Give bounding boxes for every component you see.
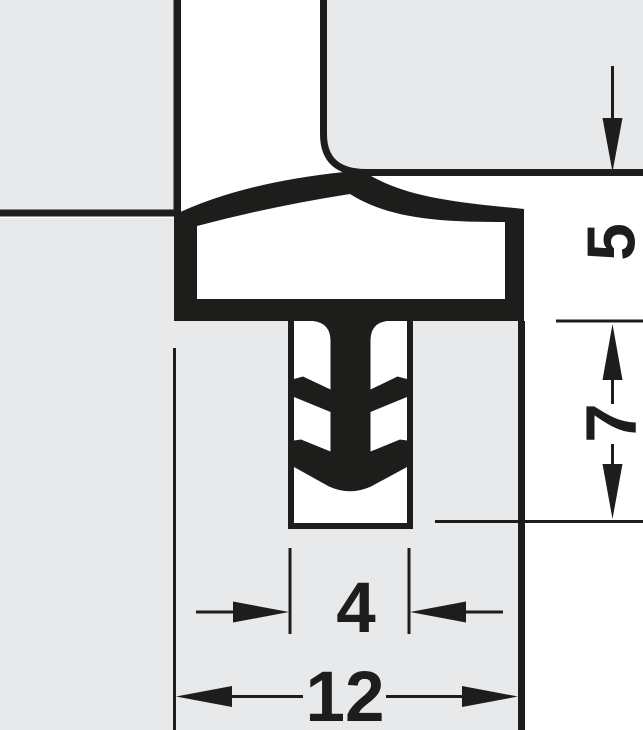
svg-text:4: 4	[336, 569, 376, 648]
svg-text:5: 5	[574, 223, 643, 261]
svg-text:7: 7	[573, 403, 643, 443]
svg-text:12: 12	[306, 658, 385, 730]
